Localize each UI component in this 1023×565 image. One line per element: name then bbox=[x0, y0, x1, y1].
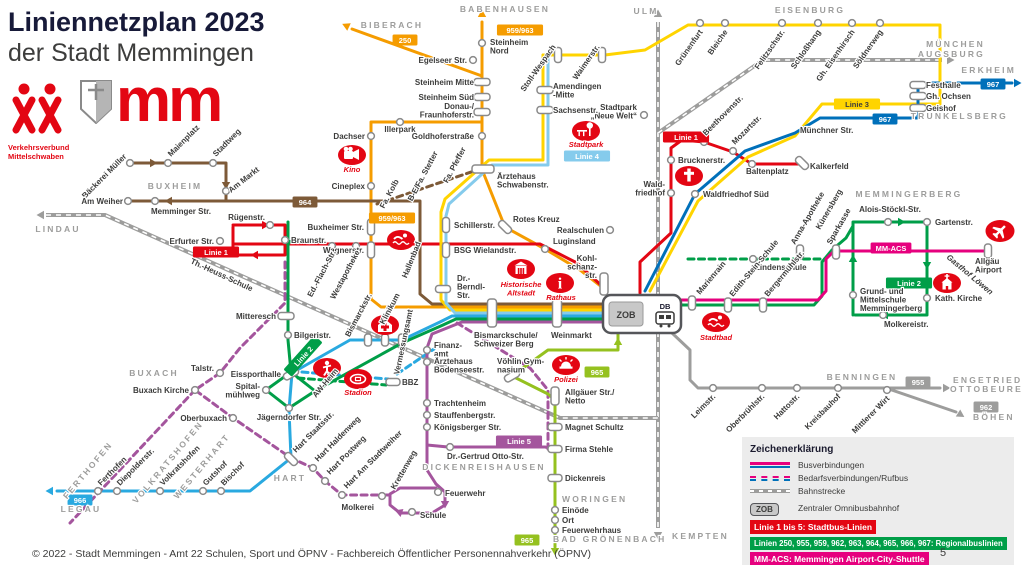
station-marker bbox=[157, 488, 164, 495]
station-label: Sachsenstr. bbox=[553, 106, 598, 115]
station-label: SteinheimNord bbox=[490, 38, 528, 55]
station-marker bbox=[424, 400, 431, 407]
station-marker bbox=[267, 222, 274, 229]
legend-sample-demand-icon bbox=[750, 475, 790, 482]
station-label: Am Markt bbox=[227, 165, 262, 195]
station-label: Bleiche bbox=[706, 28, 730, 57]
station-marker bbox=[435, 489, 442, 496]
station-label: Schloßhang bbox=[789, 28, 823, 71]
line-badge: MM-ACS bbox=[871, 243, 912, 254]
station-label: Rotes Kreuz bbox=[513, 215, 560, 224]
station-marker bbox=[552, 527, 559, 534]
rail-line bbox=[658, 60, 942, 133]
station-label: Mitteresch bbox=[236, 312, 276, 321]
line-badge: 955 bbox=[906, 377, 931, 388]
legend-item-label: Bedarfsverbindungen/Rufbus bbox=[798, 473, 908, 483]
station-label: Eissporthalle bbox=[231, 370, 282, 379]
station-label: Ort bbox=[562, 516, 574, 525]
station-marker bbox=[125, 198, 132, 205]
station-label: Kohl-schanz-str. bbox=[567, 254, 597, 280]
station-marker bbox=[697, 20, 704, 27]
legend-panel: Zeichenerklärung BusverbindungenBedarfsv… bbox=[742, 437, 1014, 565]
legend-sample-zob-icon: ZOB bbox=[750, 499, 790, 517]
station-marker bbox=[278, 313, 294, 320]
station-marker bbox=[192, 387, 199, 394]
direction-arrow-icon bbox=[340, 20, 350, 31]
station-label: Münchner Str. bbox=[800, 126, 853, 135]
verkehrsverbund-logo: Verkehrsverbund Mittelschwaben bbox=[8, 80, 72, 161]
station-marker bbox=[218, 488, 225, 495]
station-label: Fa. Kolb bbox=[378, 178, 401, 210]
station-marker bbox=[368, 133, 375, 140]
station-marker bbox=[474, 79, 490, 86]
station-label: Grünenfurt bbox=[673, 28, 705, 68]
station-label: BBZ bbox=[402, 378, 419, 387]
station-label: AllgäuAirport bbox=[975, 257, 1002, 274]
station-marker bbox=[443, 243, 450, 258]
page-subtitle: der Stadt Memmingen bbox=[8, 38, 338, 68]
direction-arrow-icon bbox=[849, 255, 857, 263]
station-label: Braunstr. bbox=[291, 236, 326, 245]
station-label: Buxheimer Str. bbox=[308, 223, 364, 232]
line-badge: 250 bbox=[393, 35, 418, 46]
station-label: Königsberger Str. bbox=[434, 423, 501, 432]
direction-label: ERKHEIM bbox=[961, 65, 1016, 75]
station-marker bbox=[910, 82, 926, 89]
station-label: Gh. Ochsen bbox=[926, 92, 971, 101]
station-label: Mittlerer Wirt bbox=[850, 394, 891, 435]
line-badge-label: Linie 1 bbox=[204, 248, 228, 257]
title-block: Liniennetzplan 2023 der Stadt Memmingen … bbox=[8, 6, 338, 161]
station-marker bbox=[409, 509, 416, 516]
line-badge: Linie 4 bbox=[564, 151, 610, 162]
legend-item-label: Zentraler Omnibusbahnhof bbox=[798, 503, 899, 513]
line-badge: 965 bbox=[585, 367, 610, 378]
station-marker bbox=[479, 133, 486, 140]
station-marker bbox=[924, 219, 931, 226]
station-marker bbox=[548, 475, 562, 482]
legend-item: ZOBZentraler Omnibusbahnhof bbox=[750, 499, 1006, 517]
station-label: Festhalle bbox=[926, 81, 961, 90]
station-label: Stauffenbergstr. bbox=[434, 411, 495, 420]
station-label: Donau-/Fraunhoferstr. bbox=[420, 102, 475, 119]
legend-sample-rail-icon bbox=[750, 489, 790, 493]
zob-label: ZOB bbox=[617, 310, 636, 320]
station-marker bbox=[310, 465, 317, 472]
station-label: Baltenplatz bbox=[746, 167, 789, 176]
station-marker bbox=[537, 107, 553, 114]
station-label: Leimstr. bbox=[689, 392, 717, 420]
station-label: Hattostr. bbox=[772, 392, 801, 421]
station-label: Vöhlin Gym-nasium bbox=[497, 357, 544, 374]
line-badge-label: Linie 1 bbox=[674, 133, 698, 142]
station-marker bbox=[447, 444, 454, 451]
direction-arrow-icon bbox=[898, 218, 906, 226]
station-marker bbox=[443, 218, 450, 233]
station-label: Steinheim Süd bbox=[418, 93, 474, 102]
station-label: Molkereistr. bbox=[884, 320, 928, 329]
station-marker bbox=[552, 507, 559, 514]
direction-label: BAD GRÖNENBACH bbox=[553, 534, 666, 544]
legend-item: Bedarfsverbindungen/Rufbus bbox=[750, 473, 1006, 483]
station-label: Erfurter Str. bbox=[170, 237, 214, 246]
station-label: Molkerei bbox=[342, 503, 374, 512]
station-label: B-E/Fa. Stetter bbox=[406, 150, 440, 203]
station-label: Kath. Kirche bbox=[935, 294, 983, 303]
church-poi-icon bbox=[933, 273, 961, 293]
station-marker bbox=[815, 20, 822, 27]
poi-label: Rathaus bbox=[546, 293, 576, 302]
station-label: Oberbrühlstr. bbox=[724, 392, 766, 434]
station-label: Buxach Kirche bbox=[133, 386, 190, 395]
direction-label: EISENBURG bbox=[775, 5, 845, 15]
city-crest-icon bbox=[80, 80, 112, 124]
station-label: Realschulen bbox=[557, 226, 604, 235]
station-marker bbox=[730, 148, 737, 155]
station-marker bbox=[552, 517, 559, 524]
line-badge-label: 959/963 bbox=[506, 26, 533, 35]
direction-label: AUGSBURG bbox=[918, 49, 985, 59]
station-label: Gartenstr. bbox=[935, 218, 973, 227]
station-marker bbox=[152, 198, 159, 205]
station-marker bbox=[537, 87, 553, 94]
legend-title: Zeichenerklärung bbox=[750, 444, 1006, 455]
station-label: Alois-Stöckl-Str. bbox=[859, 205, 921, 214]
direction-arrow-icon bbox=[956, 409, 967, 420]
station-label: Gh. Eisenhirsch bbox=[814, 28, 856, 83]
line-badge: Linie 3 bbox=[834, 99, 880, 110]
station-marker bbox=[365, 334, 372, 346]
station-label: Feuerwehr bbox=[445, 489, 485, 498]
direction-label: BENNINGEN bbox=[827, 372, 898, 382]
legend-item-label: Bahnstrecke bbox=[798, 486, 845, 496]
station-label: Oberbuxach bbox=[180, 414, 227, 423]
altstadt-poi-icon bbox=[507, 259, 535, 279]
station-marker bbox=[551, 387, 559, 405]
station-marker bbox=[470, 57, 477, 64]
station-marker bbox=[600, 273, 608, 295]
poi-label: Stadtbad bbox=[700, 333, 733, 342]
stadium-poi-icon bbox=[344, 369, 372, 389]
direction-arrow-icon bbox=[923, 262, 931, 270]
station-marker bbox=[339, 492, 346, 499]
station-label: Einöde bbox=[562, 506, 589, 515]
station-marker bbox=[692, 191, 699, 198]
station-marker bbox=[472, 165, 494, 173]
line-badge: 967 bbox=[981, 79, 1006, 90]
station-label: Rügenstr. bbox=[228, 213, 265, 222]
direction-label: OTTOBEUREN bbox=[950, 384, 1023, 394]
line-badge: Linie 5 bbox=[496, 436, 542, 447]
direction-label: BIBERACH bbox=[361, 20, 423, 30]
station-marker bbox=[285, 332, 292, 339]
direction-label: BUXHEIM bbox=[148, 181, 203, 191]
station-label: Trachtenheim bbox=[434, 399, 486, 408]
legend-item-label: Busverbindungen bbox=[798, 460, 864, 470]
station-marker bbox=[286, 405, 293, 412]
info-poi-icon: i bbox=[546, 273, 574, 293]
rail-line-dashes bbox=[658, 60, 942, 133]
station-label: Jägerndorfer Str. bbox=[257, 413, 321, 422]
direction-label: LEGAU bbox=[61, 504, 102, 514]
line-badge-label: 959/963 bbox=[378, 214, 405, 223]
station-label: Brucknerstr. bbox=[678, 156, 725, 165]
station-marker bbox=[282, 237, 289, 244]
station-label: Talstr. bbox=[191, 364, 214, 373]
direction-label: BABENHAUSEN bbox=[460, 4, 550, 14]
station-marker bbox=[641, 112, 648, 119]
station-label: Dr.-Gertrud Otto-Str. bbox=[447, 452, 524, 461]
station-label: Am Weiher bbox=[81, 197, 123, 206]
line-badge: 962 bbox=[974, 402, 999, 413]
station-label: Schule bbox=[420, 511, 447, 520]
station-marker bbox=[849, 20, 856, 27]
station-marker bbox=[217, 370, 224, 377]
vvm-people-icon bbox=[8, 80, 68, 136]
station-marker bbox=[779, 20, 786, 27]
siren-poi-icon bbox=[552, 355, 580, 375]
direction-arrow-icon bbox=[251, 251, 259, 259]
station-marker bbox=[230, 415, 237, 422]
station-label: ÄrztehausBodenseestr. bbox=[434, 357, 484, 374]
station-marker bbox=[668, 190, 675, 197]
station-marker bbox=[548, 424, 562, 431]
station-marker bbox=[910, 93, 926, 100]
station-marker bbox=[710, 385, 717, 392]
station-label: Kalkerfeld bbox=[810, 162, 849, 171]
station-marker bbox=[607, 227, 614, 234]
cross-poi-icon bbox=[675, 166, 703, 186]
logo-row: Verkehrsverbund Mittelschwaben mm bbox=[8, 80, 338, 161]
direction-label: BÖHEN bbox=[973, 412, 1015, 422]
line-badge-label: 964 bbox=[299, 198, 312, 207]
station-label: Schillerstr. bbox=[454, 221, 495, 230]
station-label: Steinheim Mitte bbox=[415, 78, 475, 87]
station-marker bbox=[548, 446, 562, 453]
station-label: Cineplex bbox=[332, 182, 366, 191]
direction-label: HART bbox=[274, 473, 306, 483]
station-marker bbox=[794, 385, 801, 392]
line-badge: Linie 1 bbox=[193, 247, 239, 258]
line-badge-label: Linie 5 bbox=[507, 437, 531, 446]
station-label: Magnet Schultz bbox=[565, 423, 624, 432]
legend-banner: Linien 250, 955, 959, 962, 963, 964, 965… bbox=[750, 537, 1007, 550]
direction-label: MÜNCHEN bbox=[926, 39, 985, 49]
station-marker bbox=[200, 488, 207, 495]
station-marker bbox=[436, 286, 451, 293]
station-marker bbox=[835, 385, 842, 392]
station-marker bbox=[689, 296, 696, 310]
station-label: Finanz-amt bbox=[434, 341, 462, 358]
station-marker bbox=[833, 245, 840, 259]
station-marker bbox=[424, 359, 431, 366]
station-label: Firma Stehle bbox=[565, 445, 614, 454]
station-label: Weinmarkt bbox=[551, 331, 592, 340]
direction-label: KEMPTEN bbox=[672, 531, 729, 541]
station-marker bbox=[322, 478, 329, 485]
station-label: Dr.-Berndl-Str. bbox=[457, 274, 485, 300]
station-label: Dickenreis bbox=[565, 474, 606, 483]
station-marker bbox=[759, 385, 766, 392]
line-badge-label: MM-ACS bbox=[876, 244, 907, 253]
station-marker bbox=[722, 20, 729, 27]
station-marker bbox=[114, 488, 121, 495]
station-label: Th.-Heuss-Schule bbox=[189, 257, 255, 294]
direction-label: BUXACH bbox=[129, 368, 179, 378]
station-marker bbox=[850, 292, 857, 299]
swim-poi-icon bbox=[702, 312, 730, 332]
station-label: Felitzschstr. bbox=[753, 28, 787, 71]
station-label: Stoll-Wespach bbox=[519, 43, 558, 93]
direction-arrow-icon bbox=[614, 338, 622, 346]
station-label: Memminger Str. bbox=[151, 207, 211, 216]
legend-banners: Linie 1 bis 5: Stadtbus-LinienLinien 250… bbox=[750, 520, 1006, 565]
bus-line-rd bbox=[233, 225, 285, 255]
station-label: Marienrain bbox=[695, 259, 728, 296]
line-badge-label: 967 bbox=[879, 115, 892, 124]
legend-sample-bus-icon bbox=[750, 461, 790, 469]
legend-zob-icon: ZOB bbox=[750, 503, 779, 516]
station-label: Allgäuer Str./Netto bbox=[565, 388, 615, 405]
station-marker bbox=[379, 493, 386, 500]
station-label: ÄrztehausSchwabenstr. bbox=[497, 172, 549, 189]
station-label: Grund- undMittelschuleMemmingerberg bbox=[860, 287, 922, 313]
line-badge: 959/963 bbox=[497, 25, 543, 36]
direction-label: MEMMINGERBERG bbox=[856, 189, 963, 199]
zob-central-bus-station: ZOBDB bbox=[603, 295, 681, 333]
station-marker bbox=[474, 94, 490, 101]
station-marker bbox=[497, 219, 513, 235]
station-marker bbox=[424, 347, 431, 354]
station-label: Bismarckschule/Schweizer Berg bbox=[474, 331, 538, 348]
station-marker bbox=[95, 488, 102, 495]
direction-arrow-icon bbox=[37, 211, 45, 219]
station-marker bbox=[794, 155, 810, 171]
line-badge: 959/963 bbox=[369, 213, 415, 224]
bus-line-gy bbox=[886, 388, 956, 412]
poi-label: Stadion bbox=[344, 388, 372, 397]
line-badge-label: 965 bbox=[591, 368, 604, 377]
station-marker bbox=[474, 109, 490, 116]
line-badge-label: 965 bbox=[521, 536, 534, 545]
station-label: Dachser bbox=[333, 132, 365, 141]
legend-item: Bahnstrecke bbox=[750, 486, 1006, 496]
legend-item: Busverbindungen bbox=[750, 460, 1006, 470]
page-number: 5 bbox=[940, 547, 946, 559]
direction-label: DICKENREISHAUSEN bbox=[422, 462, 546, 472]
park-poi-icon bbox=[572, 121, 600, 141]
line-badge: 965 bbox=[515, 535, 540, 546]
direction-arrow-icon bbox=[46, 487, 54, 495]
station-label: Mozartstr. bbox=[730, 113, 763, 146]
station-marker bbox=[668, 157, 675, 164]
page-title: Liniennetzplan 2023 bbox=[8, 6, 338, 38]
db-label: DB bbox=[660, 302, 671, 311]
station-marker bbox=[217, 238, 224, 245]
station-label: Waimerstr. bbox=[571, 43, 602, 81]
poi-label: Polizei bbox=[554, 375, 579, 384]
station-marker bbox=[488, 299, 497, 327]
direction-label: WORINGEN bbox=[562, 494, 627, 504]
direction-label: LINDAU bbox=[35, 224, 80, 234]
station-marker bbox=[725, 298, 732, 312]
station-label: Bilgeristr. bbox=[294, 331, 331, 340]
bus-line-gn-demand bbox=[298, 378, 386, 385]
station-marker bbox=[368, 242, 375, 258]
legend-banner: Linie 1 bis 5: Stadtbus-Linien bbox=[750, 520, 876, 534]
station-marker bbox=[479, 40, 486, 47]
line-badge-label: 962 bbox=[980, 403, 993, 412]
station-label: Kreisbauhof bbox=[803, 392, 843, 432]
liniennetzplan-page: ZOBDB250959/963959/963964Linie 1Linie 1L… bbox=[0, 0, 1023, 565]
station-label: Luginsland bbox=[553, 237, 596, 246]
station-marker bbox=[985, 244, 992, 258]
station-marker bbox=[884, 387, 891, 394]
station-marker bbox=[760, 298, 767, 312]
station-marker bbox=[263, 387, 270, 394]
direction-arrow-icon bbox=[1014, 79, 1022, 87]
station-marker bbox=[424, 424, 431, 431]
station-label: Spital-mühlweg bbox=[225, 382, 260, 399]
line-badge: 967 bbox=[873, 114, 898, 125]
station-marker bbox=[542, 246, 549, 253]
legend-items: BusverbindungenBedarfsverbindungen/Rufbu… bbox=[750, 460, 1006, 517]
line-badge-label: Linie 4 bbox=[575, 152, 600, 161]
direction-arrow-icon bbox=[165, 197, 173, 205]
station-label: Krettenweg bbox=[389, 449, 419, 491]
line-badge-label: 250 bbox=[399, 36, 412, 45]
legend-banner: MM-ACS: Memmingen Airport-City-Shuttle bbox=[750, 552, 929, 565]
poi-label: Kino bbox=[344, 165, 361, 174]
station-marker bbox=[553, 299, 562, 327]
station-label: Söldnerweg bbox=[851, 28, 884, 70]
line-badge: 964 bbox=[293, 197, 318, 208]
station-label: Fa. Pfeffer bbox=[441, 146, 467, 185]
station-label: Egelseer Str. bbox=[419, 56, 467, 65]
station-marker bbox=[877, 20, 884, 27]
station-marker bbox=[885, 219, 892, 226]
line-badge-label: Linie 3 bbox=[845, 100, 869, 109]
poi-label: Stadtpark bbox=[569, 140, 604, 149]
mm-city-logo: mm bbox=[116, 76, 220, 126]
kino-poi-icon bbox=[338, 145, 366, 165]
direction-label: TRUNKELSBERG bbox=[911, 111, 1008, 121]
svg-text:i: i bbox=[558, 276, 563, 293]
station-label: Wald-friedhof bbox=[635, 180, 665, 197]
station-marker bbox=[386, 379, 400, 386]
station-label: Waldfriedhof Süd bbox=[703, 190, 769, 199]
line-badge-label: 955 bbox=[912, 378, 925, 387]
line-badge-label: 967 bbox=[987, 80, 1000, 89]
station-label: BSG Wielandstr. bbox=[454, 246, 516, 255]
station-marker bbox=[924, 295, 931, 302]
station-label: Goldhoferstraße bbox=[412, 132, 475, 141]
station-marker bbox=[424, 412, 431, 419]
poi-label: HistorischeAltstadt bbox=[501, 280, 542, 297]
vvm-label: Verkehrsverbund Mittelschwaben bbox=[8, 143, 72, 161]
station-marker bbox=[382, 334, 389, 346]
station-marker bbox=[368, 183, 375, 190]
direction-label: ULM bbox=[633, 6, 658, 16]
station-label: Amendingen-Mitte bbox=[553, 82, 602, 99]
plane-poi-icon bbox=[986, 220, 1015, 242]
copyright-note: © 2022 - Stadt Memmingen - Amt 22 Schule… bbox=[32, 548, 591, 560]
